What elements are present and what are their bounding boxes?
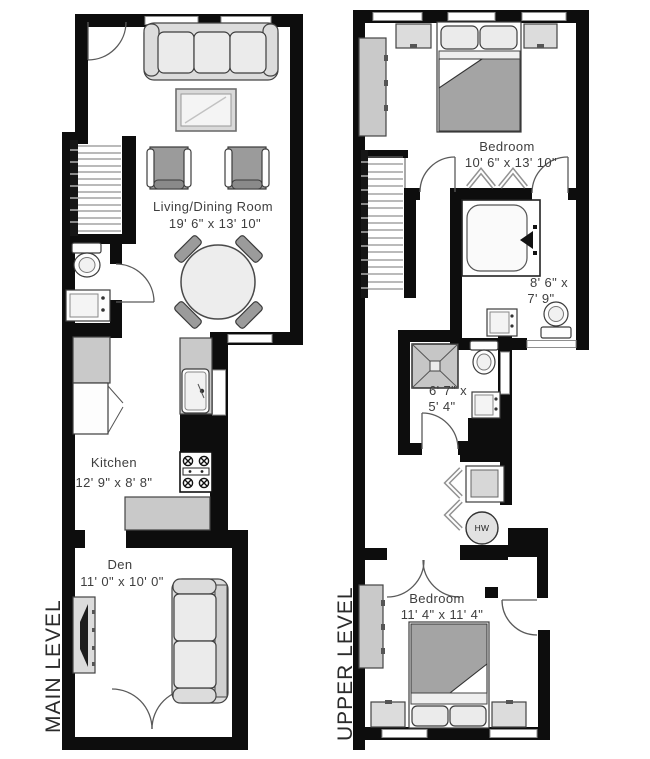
water-heater: HW <box>466 512 498 544</box>
den-label: Den <box>107 557 132 572</box>
laundry-closet <box>466 466 504 502</box>
main-level-label: MAIN LEVEL <box>42 599 65 733</box>
window <box>373 13 422 21</box>
pillow <box>412 706 448 726</box>
nightstand <box>524 24 557 48</box>
toilet <box>541 302 571 338</box>
half-bath-door-swing <box>422 413 458 449</box>
sofa-arm <box>173 688 216 703</box>
sofa-cushion <box>174 594 216 641</box>
living-dining-label: Living/Dining Room <box>153 199 273 214</box>
powder-room-door-swing <box>116 264 154 302</box>
floorplan: Living/Dining Room 19' 6" x 13' 10" Kitc… <box>0 0 650 754</box>
toilet <box>470 341 498 374</box>
upper-level-label: UPPER LEVEL <box>334 586 357 741</box>
sink <box>66 290 110 321</box>
dining-table <box>174 235 264 330</box>
window <box>501 352 510 394</box>
window <box>522 13 566 21</box>
sofa-arm <box>144 24 159 76</box>
sofa <box>144 23 278 80</box>
window <box>490 730 537 738</box>
bedroom-front-dims: 10' 6" x 13' 10" <box>465 155 557 170</box>
stairs-upper <box>361 150 405 298</box>
main-level-plan: Living/Dining Room 19' 6" x 13' 10" Kitc… <box>42 14 303 750</box>
closet-chevrons <box>468 171 526 187</box>
nightstand <box>371 700 405 727</box>
window <box>382 730 427 738</box>
half-bath-dims-line2: 5' 4" <box>428 399 455 414</box>
sink <box>472 392 500 418</box>
vestibule-door-swing <box>502 600 537 635</box>
bed <box>437 22 521 132</box>
nightstand <box>492 700 526 727</box>
armchair <box>225 147 269 189</box>
stove <box>180 452 212 492</box>
bed <box>409 622 489 728</box>
pillow <box>480 26 517 49</box>
bedroom-back-dims: 11' 4" x 11' 4" <box>401 607 484 622</box>
refrigerator <box>73 383 123 434</box>
sofa-cushion <box>230 32 266 73</box>
nightstand <box>396 24 431 48</box>
den-sofa <box>172 579 228 703</box>
armchair <box>147 147 191 189</box>
sofa-cushion <box>158 32 194 73</box>
tv-console <box>73 597 95 673</box>
kitchen-sink <box>182 369 209 413</box>
bathtub <box>462 200 540 276</box>
sofa-cushion <box>174 641 216 688</box>
half-bath-dims-line1: 6' 7" x <box>429 383 467 398</box>
entry-door-swing <box>88 22 126 60</box>
bathroom-dims-line2: 7' 9" <box>527 291 554 306</box>
window <box>527 341 576 348</box>
bedroom-front-label: Bedroom <box>479 139 535 154</box>
wardrobe <box>359 38 388 136</box>
pillow <box>441 26 478 49</box>
stairs-main <box>70 140 121 236</box>
den-dims: 11' 0" x 10' 0" <box>80 574 164 589</box>
sofa-arm <box>173 579 216 594</box>
shower <box>412 344 458 388</box>
window <box>213 370 226 415</box>
sofa-cushion <box>194 32 230 73</box>
bathroom-dims-line1: 8' 6" x <box>530 275 568 290</box>
bedroom-front-door-swing <box>420 157 455 192</box>
upper-level-plan: HW Bedroom 10' 6" x 13' 10" 8' 6" x 7' 9… <box>334 10 589 750</box>
mirror-table <box>176 89 236 131</box>
window <box>228 335 272 343</box>
closet-chevrons <box>447 469 461 529</box>
toilet <box>72 243 101 277</box>
living-dining-dims: 19' 6" x 13' 10" <box>169 216 261 231</box>
sink <box>487 309 517 336</box>
water-heater-label: HW <box>475 523 490 533</box>
kitchen-dims: 12' 9" x 8' 8" <box>76 475 153 490</box>
pillow <box>450 706 486 726</box>
window <box>448 13 495 21</box>
kitchen-label: Kitchen <box>91 455 137 470</box>
bedroom-back-label: Bedroom <box>409 591 465 606</box>
wardrobe <box>359 585 385 668</box>
